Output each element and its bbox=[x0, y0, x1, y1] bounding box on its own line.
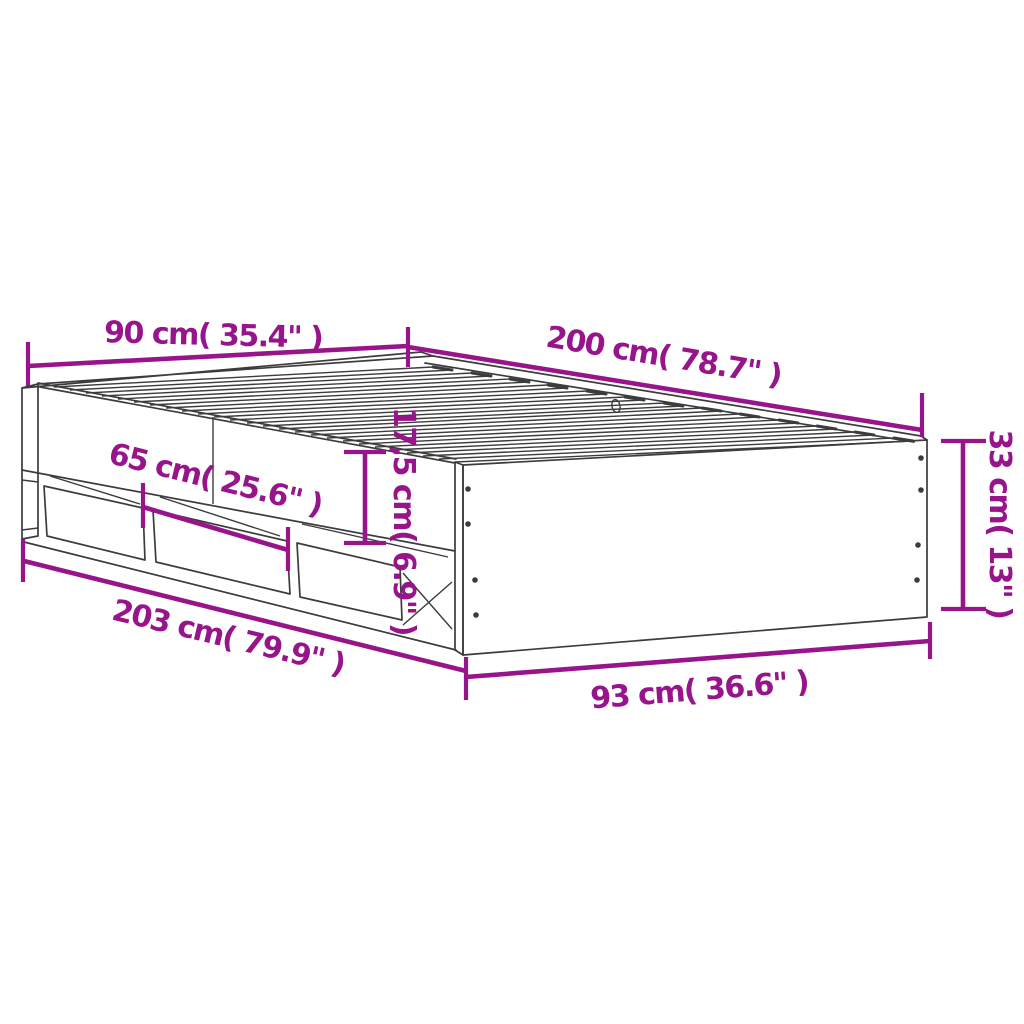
screw-holes bbox=[465, 455, 924, 618]
dim-frame-height: 33 cm( 13" ) bbox=[941, 430, 1017, 619]
foot-panel bbox=[455, 440, 927, 655]
dimension-annotations: 90 cm( 35.4" ) 200 cm( 78.7" ) 65 cm( 25… bbox=[23, 315, 1017, 716]
dim-drawer-width-label: 65 cm( 25.6" ) bbox=[105, 436, 325, 523]
dim-foot-width-label: 93 cm( 36.6" ) bbox=[589, 665, 809, 717]
product-diagram-canvas: 90 cm( 35.4" ) 200 cm( 78.7" ) 65 cm( 25… bbox=[0, 0, 1024, 1024]
dim-drawer-height-label: 17,5 cm( 6.9" ) bbox=[386, 407, 421, 635]
dim-head-width-label: 90 cm( 35.4" ) bbox=[104, 315, 323, 356]
dim-frame-height-label: 33 cm( 13" ) bbox=[982, 430, 1017, 619]
dim-base-length-label: 203 cm( 79.9" ) bbox=[109, 593, 348, 682]
headboard-panel bbox=[22, 352, 433, 539]
drawer-2 bbox=[153, 510, 290, 594]
bed-frame-dimension-diagram: 90 cm( 35.4" ) 200 cm( 78.7" ) 65 cm( 25… bbox=[0, 0, 1024, 1024]
dim-top-length-label: 200 cm( 78.7" ) bbox=[544, 320, 784, 394]
drawer-1 bbox=[44, 486, 145, 560]
